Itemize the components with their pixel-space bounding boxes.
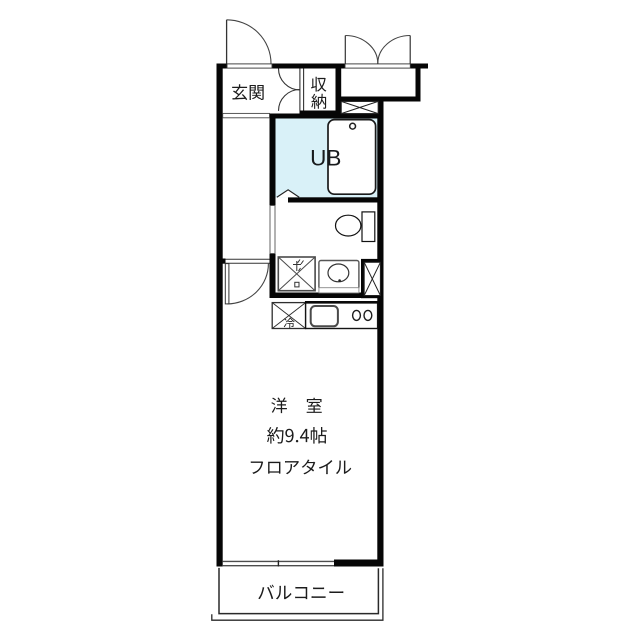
svg-text:UB: UB — [310, 146, 341, 171]
